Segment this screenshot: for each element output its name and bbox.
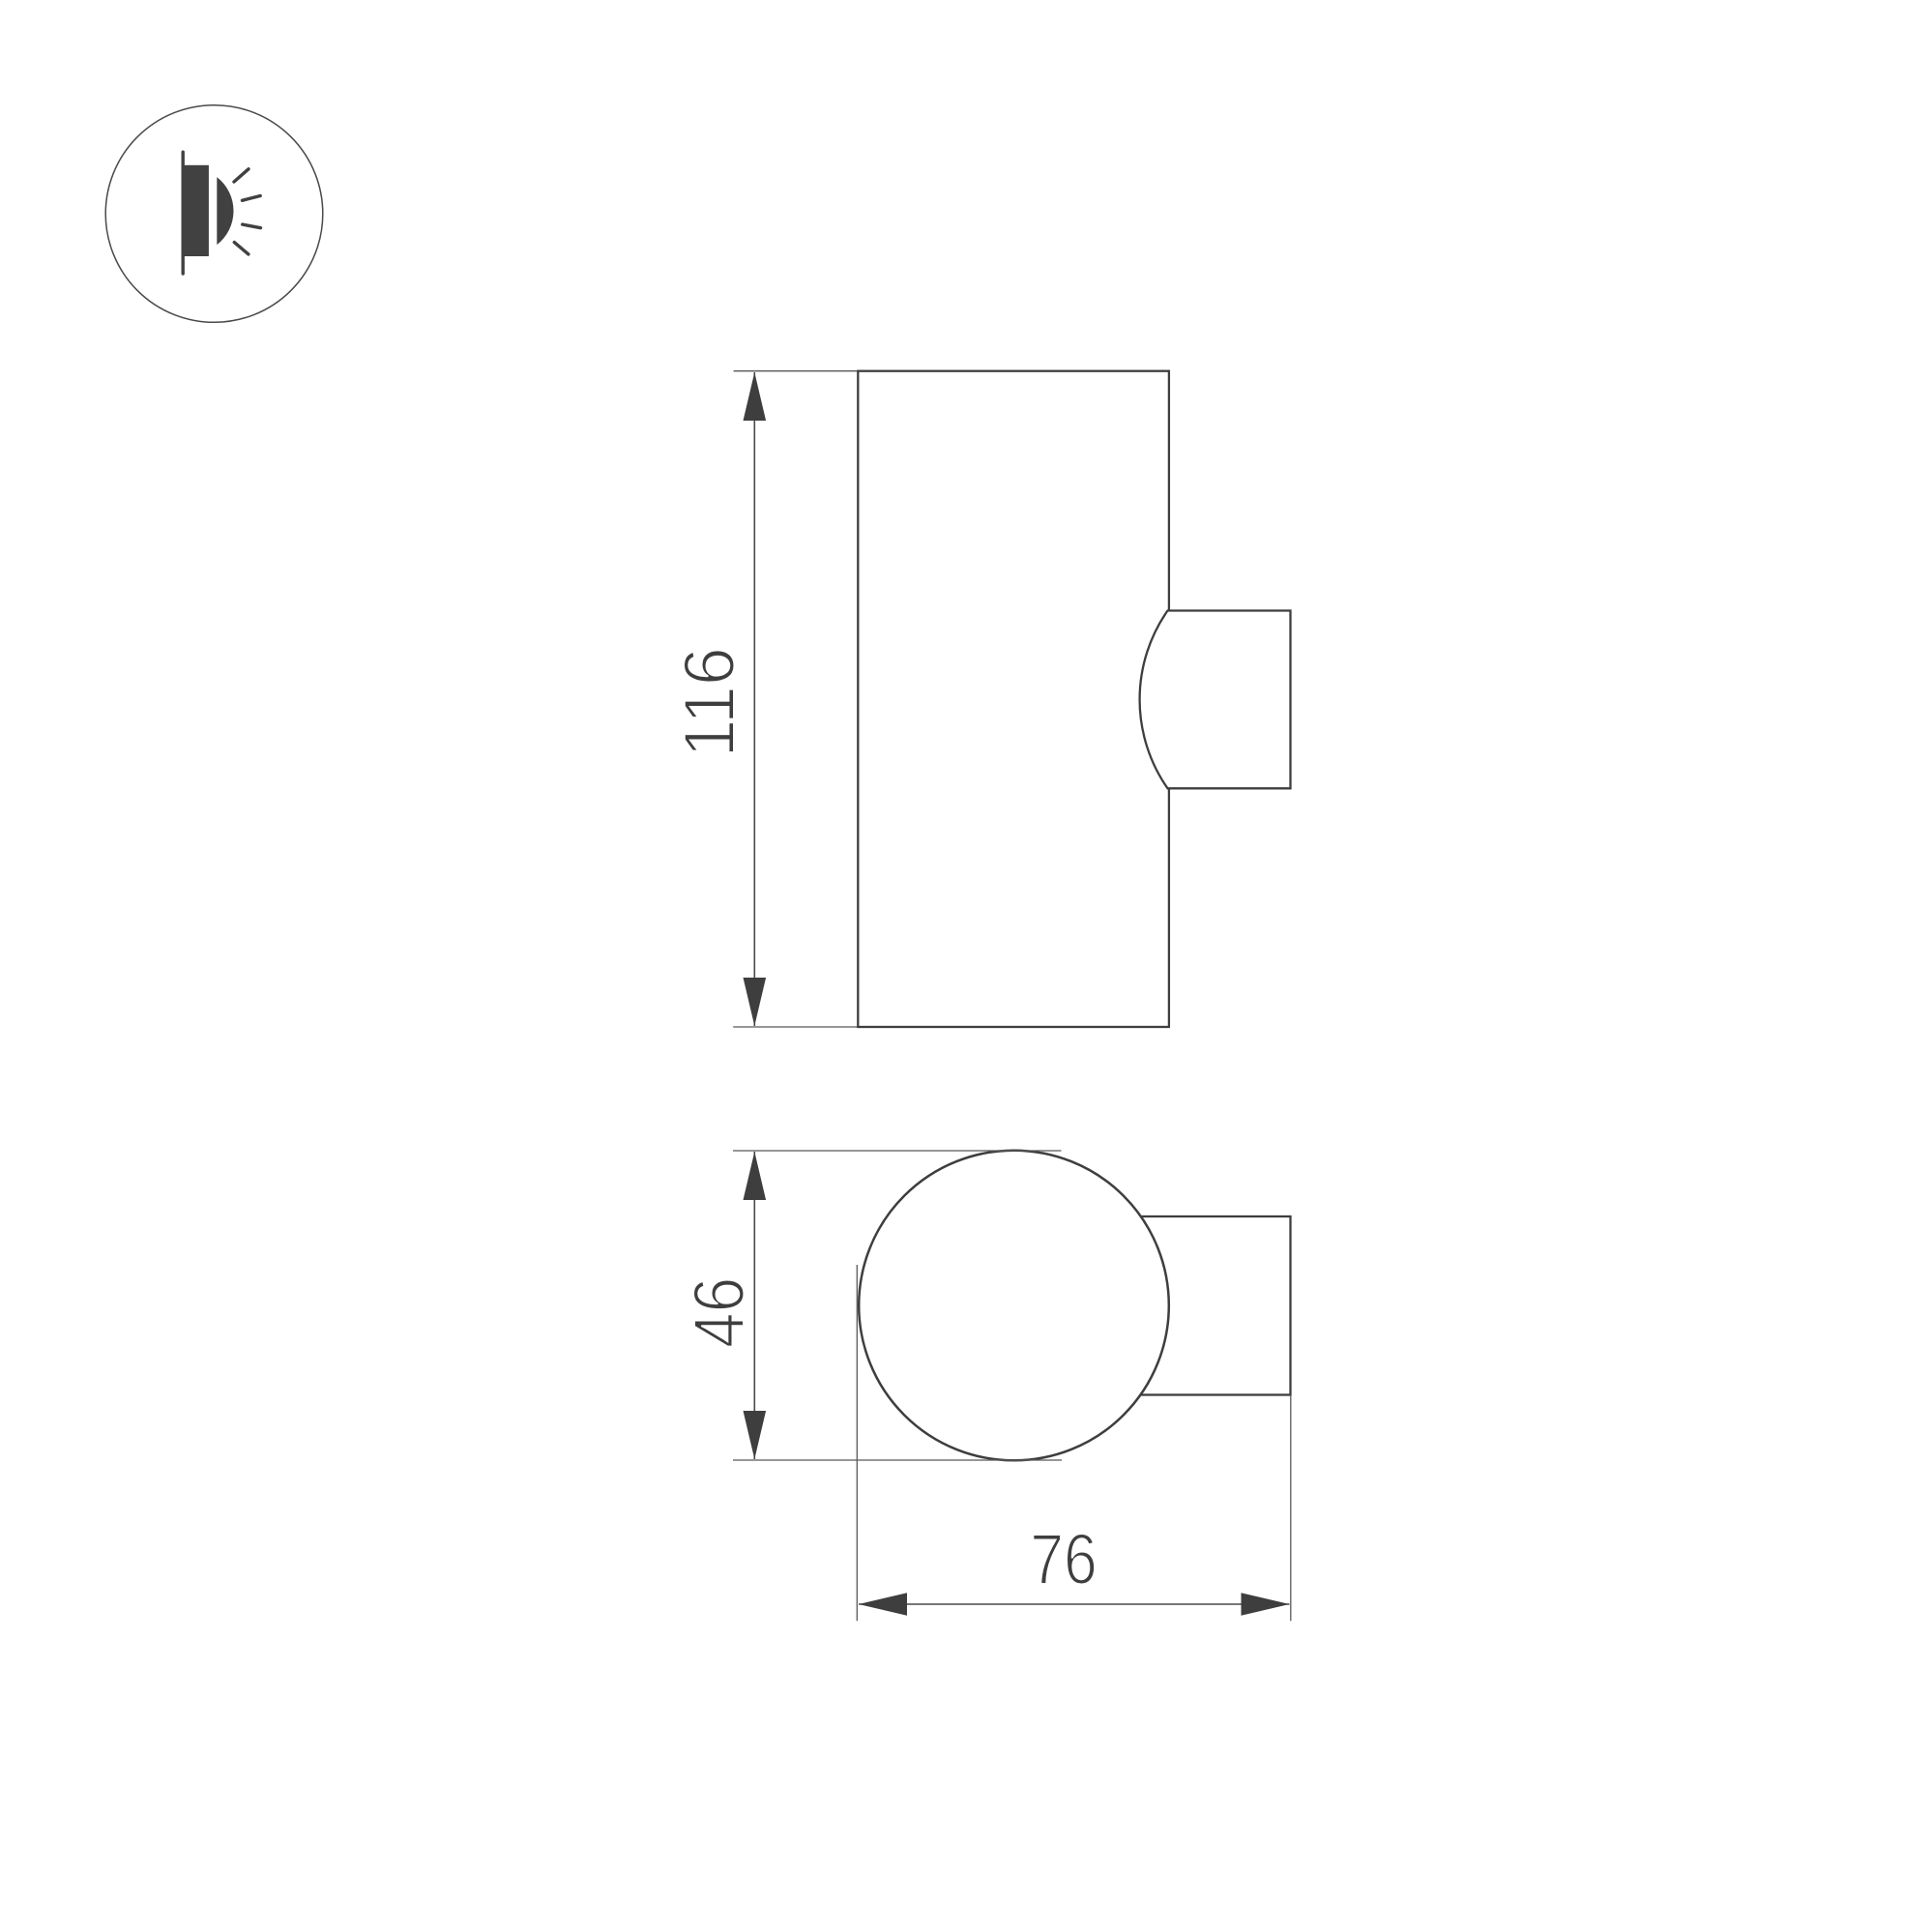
svg-text:116: 116	[670, 647, 749, 757]
svg-text:76: 76	[1030, 1519, 1098, 1599]
svg-text:46: 46	[680, 1277, 759, 1348]
